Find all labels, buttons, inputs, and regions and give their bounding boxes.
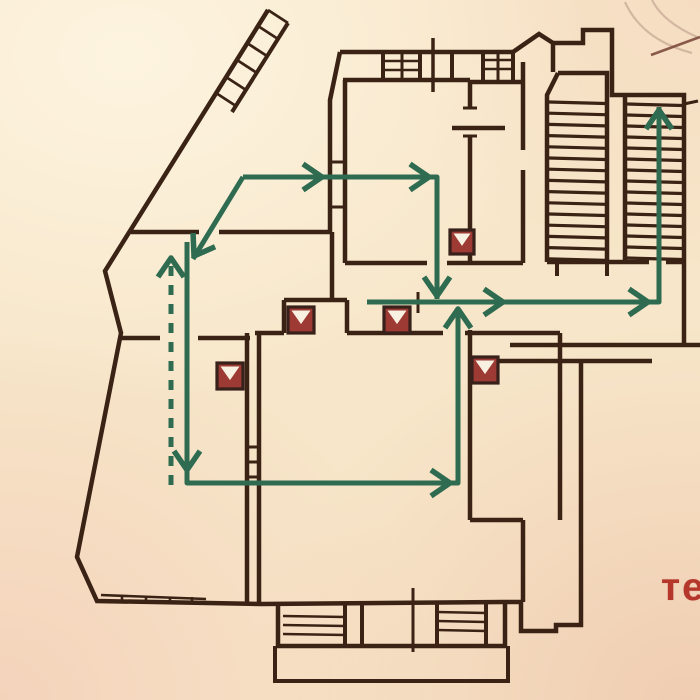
- stair-tread: [627, 203, 682, 205]
- partial-red-text: те: [661, 566, 700, 610]
- route-upper-branch-diagonal: [193, 177, 243, 259]
- stair-tread: [627, 258, 682, 260]
- stair-tread: [549, 192, 605, 194]
- stair-tread: [627, 225, 682, 227]
- stair-tread: [627, 247, 682, 249]
- stamp-arcs: [625, 0, 697, 53]
- stair-tread: [549, 158, 605, 160]
- wall-segment: [340, 34, 553, 52]
- stair-tread: [549, 147, 605, 149]
- stair-tread: [549, 259, 605, 261]
- fire-equipment-marker: [217, 363, 243, 389]
- wall-segment: [345, 232, 523, 263]
- staircase-mid: [549, 102, 605, 260]
- escape-routes: [158, 107, 672, 496]
- floor-plan-svg: [0, 0, 700, 700]
- stair-tread: [549, 136, 605, 138]
- wall-segment: [216, 10, 288, 106]
- route-upper-corridor: [243, 177, 437, 299]
- stair-tread: [549, 248, 605, 250]
- stair-tread: [549, 203, 605, 205]
- stair-tread: [627, 104, 682, 106]
- stair-tread: [549, 169, 605, 171]
- stair-tread: [549, 113, 605, 115]
- stair-tread: [627, 170, 682, 172]
- stair-tread: [627, 214, 682, 216]
- stair-tread: [627, 137, 682, 139]
- floor-plan-photo: те: [0, 0, 700, 700]
- stair-tread: [549, 225, 605, 227]
- stair-tread: [549, 180, 605, 182]
- stair-tread: [549, 214, 605, 216]
- stair-tread: [549, 236, 605, 238]
- stair-tread: [627, 159, 682, 161]
- wall-segment: [345, 604, 486, 645]
- wall-segment: [283, 612, 486, 635]
- staircases: [549, 102, 682, 260]
- stair-tread: [549, 102, 605, 104]
- stair-tread: [549, 124, 605, 126]
- wall-segment: [553, 30, 625, 95]
- fire-equipment-marker: [450, 230, 474, 254]
- fire-equipment-marker: [472, 357, 498, 383]
- wall-segment: [232, 23, 288, 112]
- wall-segment: [101, 595, 206, 599]
- stamp-arc: [652, 0, 697, 37]
- stair-tread: [627, 181, 682, 183]
- wall-segment: [463, 108, 477, 136]
- fire-equipment-marker: [288, 307, 314, 333]
- stair-tread: [627, 148, 682, 150]
- fire-equipment-marker: [384, 307, 410, 333]
- stair-tread: [627, 192, 682, 194]
- wall-segment: [330, 52, 340, 232]
- stair-tread: [627, 236, 682, 238]
- wall-segment: [275, 646, 508, 681]
- wall-segment: [247, 333, 259, 603]
- route-central-corridor-to-right-stairs: [367, 107, 659, 302]
